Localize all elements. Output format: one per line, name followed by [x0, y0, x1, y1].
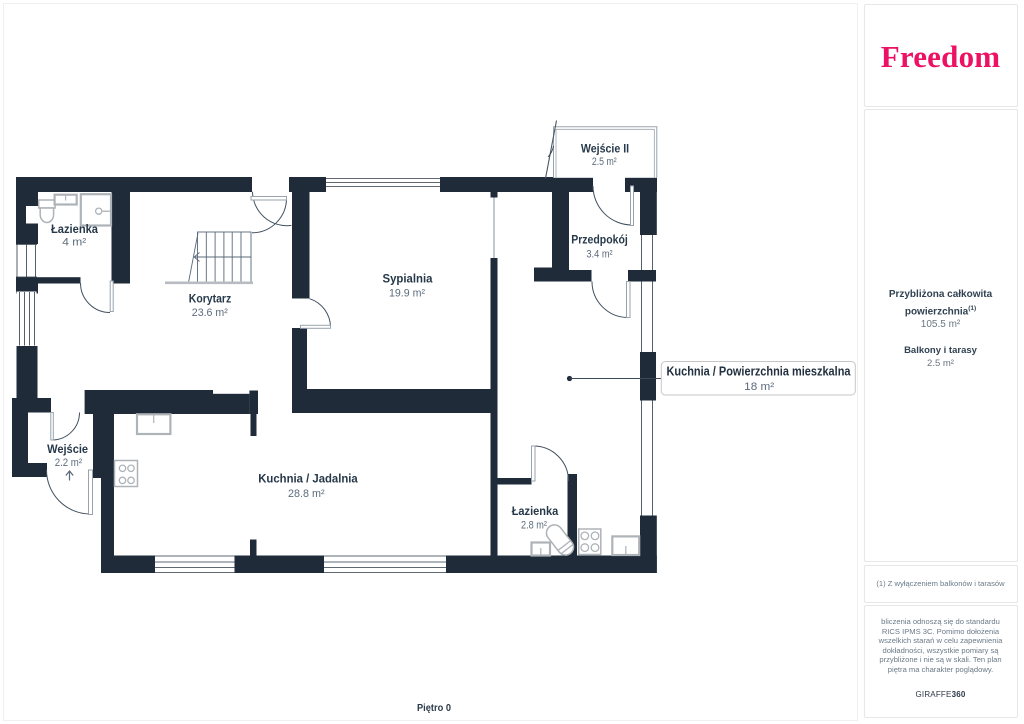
svg-text:Korytarz: Korytarz — [189, 292, 232, 306]
svg-text:Łazienka: Łazienka — [51, 222, 98, 236]
svg-text:Piętro 0: Piętro 0 — [417, 702, 451, 714]
svg-text:2.5 m²: 2.5 m² — [592, 156, 617, 168]
svg-text:18 m²: 18 m² — [744, 381, 774, 393]
svg-text:Wejście: Wejście — [47, 442, 88, 456]
svg-text:2.8 m²: 2.8 m² — [521, 520, 547, 532]
svg-text:28.8 m²: 28.8 m² — [288, 488, 325, 500]
svg-text:23.6 m²: 23.6 m² — [192, 307, 228, 319]
svg-text:Kuchnia / Jadalnia: Kuchnia / Jadalnia — [258, 472, 358, 486]
svg-text:4 m²: 4 m² — [62, 237, 86, 249]
svg-text:Przedpokój: Przedpokój — [571, 233, 628, 247]
svg-text:Kuchnia / Powierzchnia mieszka: Kuchnia / Powierzchnia mieszkalna — [667, 365, 852, 379]
svg-text:Sypialnia: Sypialnia — [383, 272, 433, 286]
svg-text:2.2 m²: 2.2 m² — [55, 457, 83, 469]
svg-text:3.4 m²: 3.4 m² — [586, 249, 613, 261]
svg-text:Łazienka: Łazienka — [512, 504, 559, 518]
svg-text:19.9 m²: 19.9 m² — [389, 288, 425, 300]
svg-text:Wejście II: Wejście II — [581, 142, 629, 156]
